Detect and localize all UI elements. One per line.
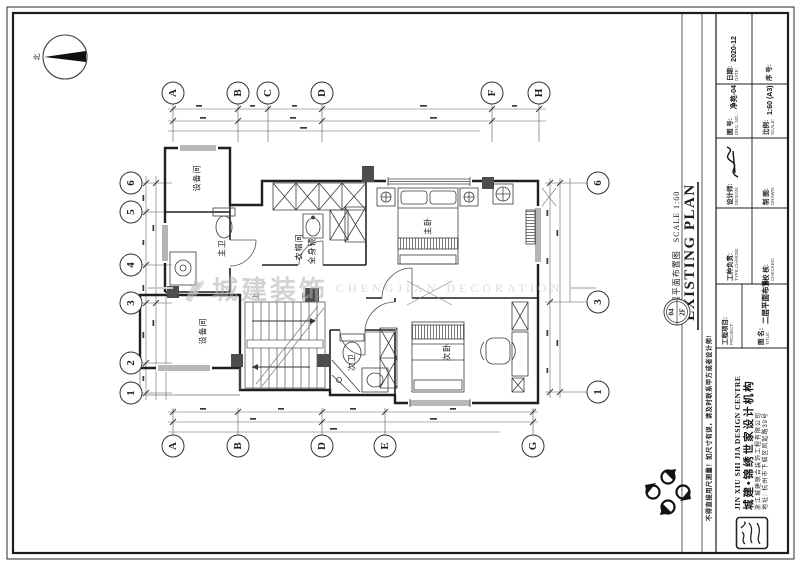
north-arrow: 北	[33, 35, 87, 79]
grid-label-top-b: B	[232, 89, 244, 97]
grid-label-bottom-e: E	[379, 442, 391, 449]
company-name-zh: 城建•锦绣世家设计机构	[743, 376, 756, 510]
plan-title-en: EXISTING PLAN	[682, 183, 698, 320]
date-value: 2020-12	[731, 36, 738, 62]
wardrobes	[273, 183, 366, 242]
drgno-label: 图 号: DRG. NO.:	[728, 113, 740, 135]
grid-label-right-1: 1	[592, 389, 604, 395]
titleblock-cell-drgno: 图 号: DRG. NO.: 净苑-04	[716, 84, 752, 138]
grid-label-right-3: 3	[592, 299, 604, 305]
grid-label-top-c: C	[262, 89, 274, 97]
grid-label-right-6: 6	[592, 180, 604, 186]
staircase: 上 下	[245, 293, 325, 389]
designer-label: 设计师: DESIGN:	[728, 183, 740, 205]
company-line2: 地址: 杭州市下城区凤起路39号	[763, 376, 771, 510]
company-name-en: JIN XIU SHI JIA DESIGN CENTRE	[733, 376, 742, 510]
north-label: 北	[33, 54, 41, 61]
room-label-master-bedroom: 主卧	[423, 217, 433, 235]
serial-label: 序 号:	[767, 64, 774, 81]
grid-label-bottom-a: A	[167, 442, 179, 450]
pinwheel-logo	[645, 469, 691, 515]
drawing-sheet: 北	[0, 0, 800, 566]
room-label-master-bath: 主卫	[217, 239, 227, 257]
titleblock-cell-drawn: 制 图: DRAWN:	[752, 138, 788, 208]
grid-label-top-f: F	[486, 89, 498, 96]
grid-label-top-d: D	[316, 89, 328, 97]
sheet-title-value: 二层平面布置图	[760, 281, 771, 324]
grid-label-bottom-g: G	[527, 441, 539, 450]
grid-label-left-3: 3	[125, 300, 137, 306]
room-label-equipment-top: 设备间	[192, 165, 202, 192]
company-seal	[735, 516, 769, 550]
room-label-second-bedroom: 次卧	[442, 343, 452, 361]
titleblock-cell-charge: 工种负责: TYPE CHARGE:	[716, 208, 752, 284]
disclaimer-cell: 不得直接用尺测量！如尺寸有误，请及时联系甲方或者设计师!	[701, 300, 715, 556]
stair-down-label: 下	[302, 293, 310, 300]
second-bedroom-furniture	[380, 302, 528, 392]
scale-label: 比例: SCALE:	[764, 119, 776, 135]
grid-label-top-h: H	[533, 88, 545, 97]
titleblock-cell-project: 工程项目: PROJECT:	[716, 284, 742, 348]
project-label: 工程项目: PROJECT:	[723, 317, 735, 345]
titleblock-cell-company: JIN XIU SHI JIA DESIGN CENTRE 城建•锦绣世家设计机…	[716, 348, 788, 556]
detail-floor: 2F	[679, 308, 687, 316]
room-label-mirror: 全身镜	[307, 238, 317, 265]
grid-bubbles: A B C D F H A B D E G 6 5 4 3 2 1 6 3 1	[120, 82, 609, 457]
room-label-equipment-bottom: 设备间	[198, 318, 208, 345]
designer-signature	[724, 145, 744, 179]
floor-plan-canvas: 北	[0, 0, 800, 566]
plan-title-zh: 二层平面布置图SCALE 1:60	[671, 191, 681, 314]
grid-label-left-1: 1	[125, 390, 137, 396]
grid-label-left-6: 6	[125, 180, 137, 186]
titleblock-cell-designer: 设计师: DESIGN:	[716, 138, 752, 208]
titleblock-cell-title: 图 名: TITLE: 二层平面布置图	[742, 284, 788, 348]
grid-label-left-2: 2	[125, 360, 137, 366]
grid-label-bottom-d: D	[316, 442, 328, 450]
grid-label-left-5: 5	[125, 209, 137, 215]
room-label-second-bath: 次卫	[347, 353, 357, 371]
scale-value: 1:60 (A3)	[767, 85, 774, 115]
titleblock-cell-serial: 序 号:	[752, 13, 788, 84]
dimension-chains	[146, 109, 570, 432]
grid-label-left-4: 4	[125, 262, 137, 268]
plan-title: 二层平面布置图SCALE 1:60 EXISTING PLAN 04 2F	[664, 182, 698, 330]
drgno-value: 净苑-04	[729, 85, 739, 109]
drawn-label: 制 图: DRAWN:	[764, 187, 776, 205]
room-label-cloakroom: 衣帽间	[294, 234, 304, 261]
stair-up-label: 上	[251, 293, 260, 300]
titleblock-cell-scale: 比例: SCALE: 1:60 (A3)	[752, 84, 788, 138]
master-bedroom-furniture	[377, 184, 556, 305]
grid-leaders	[142, 104, 587, 435]
titleblock-cell-date: 日期: DATE: 2020-12	[716, 13, 752, 84]
titleblock-cell-checked: 校 核: CHECKED:	[752, 208, 788, 284]
grid-label-top-a: A	[167, 89, 179, 97]
grid-label-bottom-b: B	[232, 442, 244, 450]
checked-label: 校 核: CHECKED:	[764, 258, 776, 281]
charge-label: 工种负责: TYPE CHARGE:	[728, 247, 740, 281]
detail-number: 04	[668, 308, 676, 316]
disclaimer-text: 不得直接用尺测量！如尺寸有误，请及时联系甲方或者设计师!	[704, 335, 713, 521]
date-label: 日期: DATE:	[728, 66, 740, 81]
